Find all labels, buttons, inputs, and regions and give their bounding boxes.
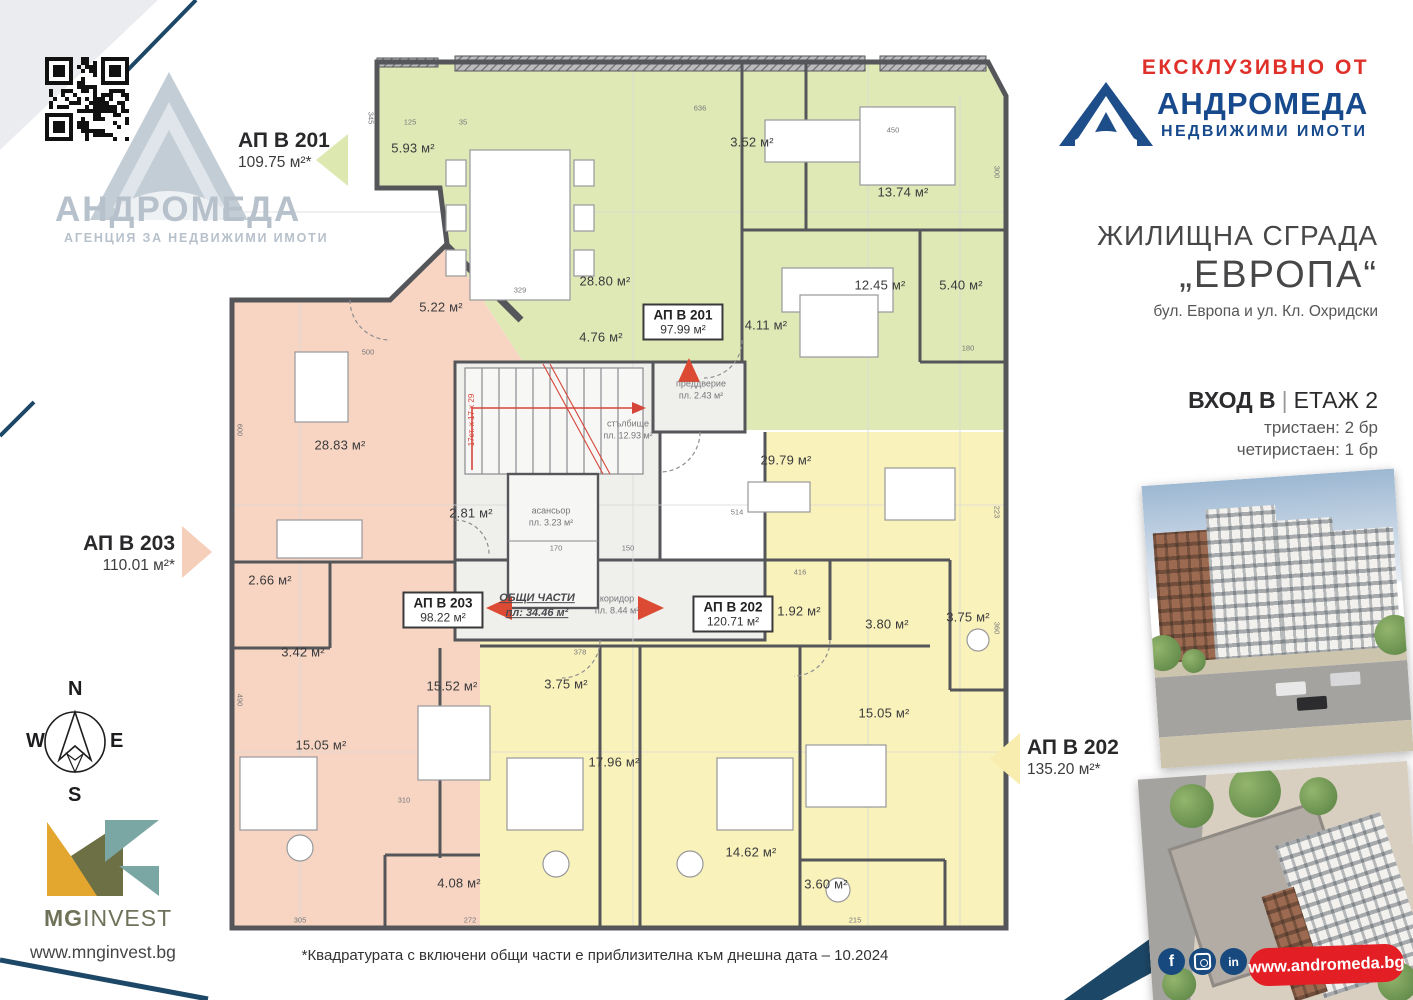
room-area-label: 15.05 м² bbox=[858, 706, 909, 721]
unit-mix: тристаен: 2 бр четиристаен: 1 бр bbox=[1100, 417, 1378, 461]
room-area-label: 3.75 м² bbox=[544, 677, 588, 692]
mginvest-wordmark: MGINVEST bbox=[44, 905, 172, 932]
room-area-label: 2.81 м² bbox=[449, 506, 493, 521]
callout-ap-b-203-name: АП В 203 bbox=[55, 533, 175, 555]
room-area-label: 28.80 м² bbox=[579, 274, 630, 289]
room-area-label: 29.79 м² bbox=[760, 453, 811, 468]
mginvest-wordmark-bold: MG bbox=[44, 905, 83, 931]
room-area-label: 3.75 м² bbox=[946, 610, 990, 625]
apartment-label-box: АП В 20398.22 м² bbox=[402, 592, 483, 629]
project-name: „ЕВРОПА“ bbox=[1000, 254, 1378, 297]
dimension-label: 514 bbox=[731, 508, 744, 517]
dimension-label: 490 bbox=[236, 694, 245, 707]
common-area-label: 17ст. х 17 х 29 bbox=[467, 394, 477, 447]
brochure-page: 5.93 м²28.80 м²3.52 м²13.74 м²12.45 м²5.… bbox=[0, 0, 1413, 1000]
dimension-label: 180 bbox=[962, 344, 975, 353]
dimension-label: 125 bbox=[404, 118, 417, 127]
building-render-street bbox=[1141, 469, 1413, 769]
project-address: бул. Европа и ул. Кл. Охридски bbox=[1000, 303, 1378, 321]
floor-label: ЕТАЖ 2 bbox=[1294, 387, 1378, 413]
instagram-glyph bbox=[1194, 953, 1212, 971]
project-title: ЖИЛИЩНА СГРАДА bbox=[1000, 220, 1378, 252]
dimension-label: 416 bbox=[794, 568, 807, 577]
andromeda-brand-logo bbox=[1059, 82, 1153, 148]
room-area-label: 12.45 м² bbox=[854, 278, 905, 293]
brand-subtitle: НЕДВИЖИМИ ИМОТИ bbox=[1161, 123, 1367, 141]
area-footnote: *Квадратурата с включени общи части е пр… bbox=[255, 947, 935, 964]
watermark-agency-name: АНДРОМЕДА bbox=[55, 190, 301, 230]
callout-ap-b-203: АП В 203 110.01 м²* bbox=[55, 533, 175, 575]
unit-mix-line-1: тристаен: 2 бр bbox=[1100, 417, 1378, 439]
mginvest-wordmark-rest: INVEST bbox=[83, 905, 172, 931]
common-area-label: преддвериепл. 2.43 м² bbox=[676, 378, 726, 401]
room-area-label: 2.66 м² bbox=[248, 573, 292, 588]
common-parts-total-label: ОБЩИ ЧАСТИпл: 34.46 м² bbox=[499, 591, 575, 621]
dimension-label: 272 bbox=[464, 916, 477, 925]
dimension-label: 600 bbox=[236, 424, 245, 437]
dimension-label: 305 bbox=[294, 916, 307, 925]
mginvest-website-link[interactable]: www.mnginvest.bg bbox=[30, 942, 176, 963]
room-area-label: 5.40 м² bbox=[939, 278, 983, 293]
apartment-label-box: АП В 202120.71 м² bbox=[692, 596, 773, 633]
callout-ap-b-203-area: 110.01 м²* bbox=[55, 557, 175, 575]
room-area-label: 4.08 м² bbox=[437, 876, 481, 891]
project-title-block: ЖИЛИЩНА СГРАДА „ЕВРОПА“ бул. Европа и ул… bbox=[1000, 220, 1378, 321]
andromeda-website-link[interactable]: www.andromeda.bg bbox=[1248, 943, 1404, 986]
room-area-label: 3.80 м² bbox=[865, 617, 909, 632]
room-area-label: 3.52 м² bbox=[730, 135, 774, 150]
callout-ap-b-202-area: 135.20 м²* bbox=[1027, 761, 1119, 779]
dimension-label: 450 bbox=[887, 126, 900, 135]
room-area-label: 1.92 м² bbox=[777, 604, 821, 619]
room-area-label: 3.42 м² bbox=[281, 645, 325, 660]
dimension-label: 300 bbox=[993, 166, 1002, 179]
exclusive-label: ЕКСКЛУЗИВНО ОТ bbox=[1128, 56, 1383, 80]
common-area-label: коридорпл. 8.44 м² bbox=[595, 593, 639, 616]
dimension-label: 310 bbox=[398, 796, 411, 805]
callout-ap-b-203-arrow bbox=[182, 526, 212, 578]
entrance-label: ВХОД В bbox=[1188, 387, 1275, 413]
room-area-label: 4.11 м² bbox=[745, 318, 788, 333]
callout-ap-b-201-arrow bbox=[316, 134, 348, 186]
dimension-label: 500 bbox=[362, 348, 375, 357]
dimension-label: 170 bbox=[550, 544, 563, 553]
room-area-label: 5.22 м² bbox=[419, 300, 463, 315]
entrance-floor-line: ВХОД В|ЕТАЖ 2 bbox=[1100, 387, 1378, 414]
room-area-label: 28.83 м² bbox=[314, 438, 365, 453]
common-area-label: стълбищепл. 12.93 м² bbox=[603, 418, 652, 441]
callout-ap-b-202: АП В 202 135.20 м²* bbox=[1027, 737, 1119, 779]
room-area-label: 13.74 м² bbox=[877, 185, 928, 200]
room-area-label: 3.60 м² bbox=[804, 877, 848, 892]
room-area-label: 5.93 м² bbox=[391, 141, 435, 156]
common-area-label: асансьорпл. 3.23 м² bbox=[529, 505, 573, 528]
room-area-label: 15.52 м² bbox=[426, 679, 477, 694]
dimension-label: 329 bbox=[514, 286, 527, 295]
compass-e: E bbox=[110, 730, 123, 753]
compass-w: W bbox=[26, 730, 45, 753]
entrance-divider: | bbox=[1276, 387, 1294, 413]
apartment-label-box: АП В 20197.99 м² bbox=[642, 304, 723, 341]
dimension-label: 345 bbox=[367, 112, 376, 125]
watermark-agency-tagline: АГЕНЦИЯ ЗА НЕДВИЖИМИ ИМОТИ bbox=[64, 231, 328, 245]
room-area-label: 14.62 м² bbox=[725, 845, 776, 860]
dimension-label: 378 bbox=[574, 648, 587, 657]
brand-name: АНДРОМЕДА bbox=[1157, 86, 1368, 122]
dimension-label: 223 bbox=[993, 506, 1002, 519]
callout-ap-b-202-name: АП В 202 bbox=[1027, 737, 1119, 759]
linkedin-glyph: in bbox=[1228, 954, 1239, 968]
unit-mix-line-2: четиристаен: 1 бр bbox=[1100, 439, 1378, 461]
room-area-label: 15.05 м² bbox=[295, 738, 346, 753]
compass-n: N bbox=[68, 678, 82, 701]
mginvest-logo bbox=[45, 812, 163, 900]
callout-ap-b-202-arrow bbox=[990, 733, 1020, 785]
dimension-label: 636 bbox=[694, 104, 707, 113]
facebook-glyph: f bbox=[1169, 952, 1175, 970]
dimension-label: 150 bbox=[622, 544, 635, 553]
room-area-label: 4.76 м² bbox=[579, 330, 623, 345]
dimension-label: 215 bbox=[849, 916, 862, 925]
compass-s: S bbox=[68, 784, 81, 807]
dimension-label: 360 bbox=[993, 622, 1002, 635]
dimension-label: 35 bbox=[459, 118, 467, 127]
room-area-label: 17.96 м² bbox=[588, 755, 639, 770]
